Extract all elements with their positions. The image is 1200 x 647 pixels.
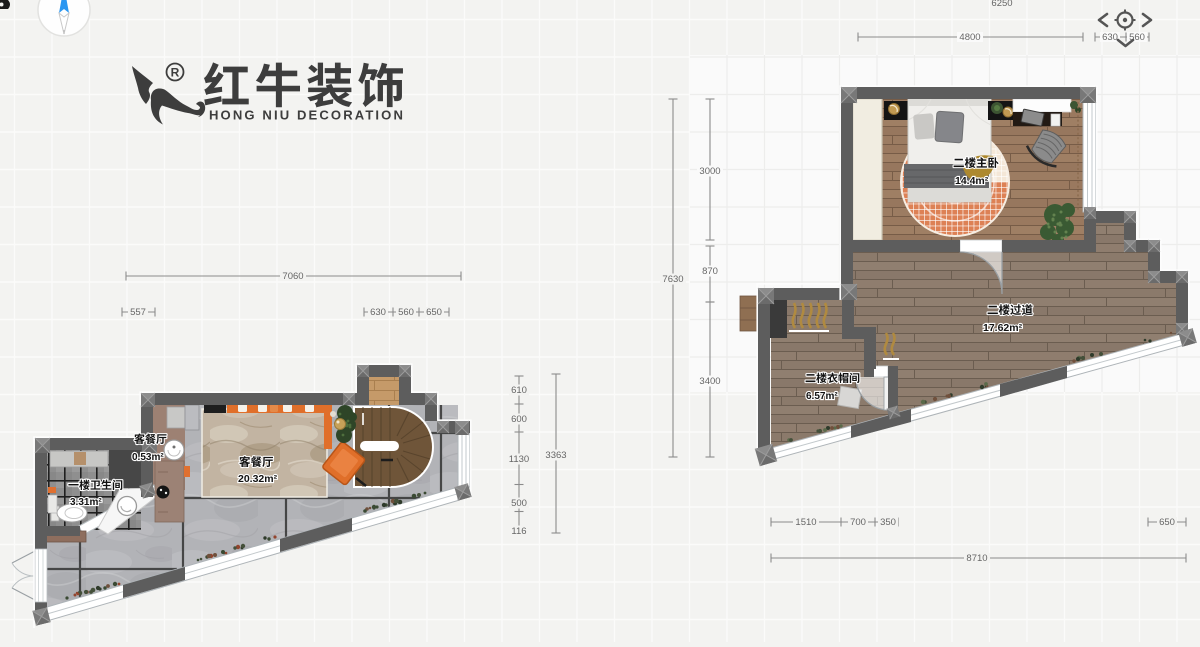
svg-text:R: R bbox=[171, 66, 180, 80]
svg-text:3400: 3400 bbox=[699, 376, 720, 387]
svg-text:870: 870 bbox=[702, 266, 718, 277]
svg-text:557: 557 bbox=[130, 307, 146, 318]
svg-text:6250: 6250 bbox=[991, 0, 1012, 9]
svg-text:8710: 8710 bbox=[966, 553, 987, 564]
svg-text:4800: 4800 bbox=[959, 32, 980, 43]
svg-text:7630: 7630 bbox=[662, 274, 683, 285]
svg-text:600: 600 bbox=[511, 414, 527, 425]
svg-text:3363: 3363 bbox=[545, 450, 566, 461]
svg-text:20.32m²: 20.32m² bbox=[238, 473, 278, 485]
svg-text:116: 116 bbox=[511, 526, 526, 537]
svg-text:7060: 7060 bbox=[282, 271, 303, 282]
svg-text:350: 350 bbox=[880, 517, 896, 528]
svg-text:650: 650 bbox=[1159, 517, 1175, 528]
svg-text:610: 610 bbox=[511, 385, 527, 396]
svg-text:HONG NIU DECORATION: HONG NIU DECORATION bbox=[209, 108, 405, 123]
svg-text:0.53m²: 0.53m² bbox=[132, 452, 164, 463]
svg-text:630: 630 bbox=[1102, 32, 1118, 43]
svg-text:560: 560 bbox=[398, 307, 414, 318]
svg-text:500: 500 bbox=[511, 498, 527, 509]
svg-text:1130: 1130 bbox=[509, 454, 529, 465]
svg-text:3000: 3000 bbox=[699, 166, 720, 177]
svg-text:700: 700 bbox=[850, 517, 866, 528]
svg-text:6.57m²: 6.57m² bbox=[806, 391, 838, 402]
svg-text:630: 630 bbox=[370, 307, 386, 318]
svg-text:14.4m²: 14.4m² bbox=[955, 175, 989, 187]
svg-text:3.31m²: 3.31m² bbox=[70, 497, 102, 508]
svg-text:17.62m²: 17.62m² bbox=[983, 322, 1023, 334]
svg-text:1510: 1510 bbox=[795, 517, 816, 528]
svg-text:650: 650 bbox=[426, 307, 442, 318]
